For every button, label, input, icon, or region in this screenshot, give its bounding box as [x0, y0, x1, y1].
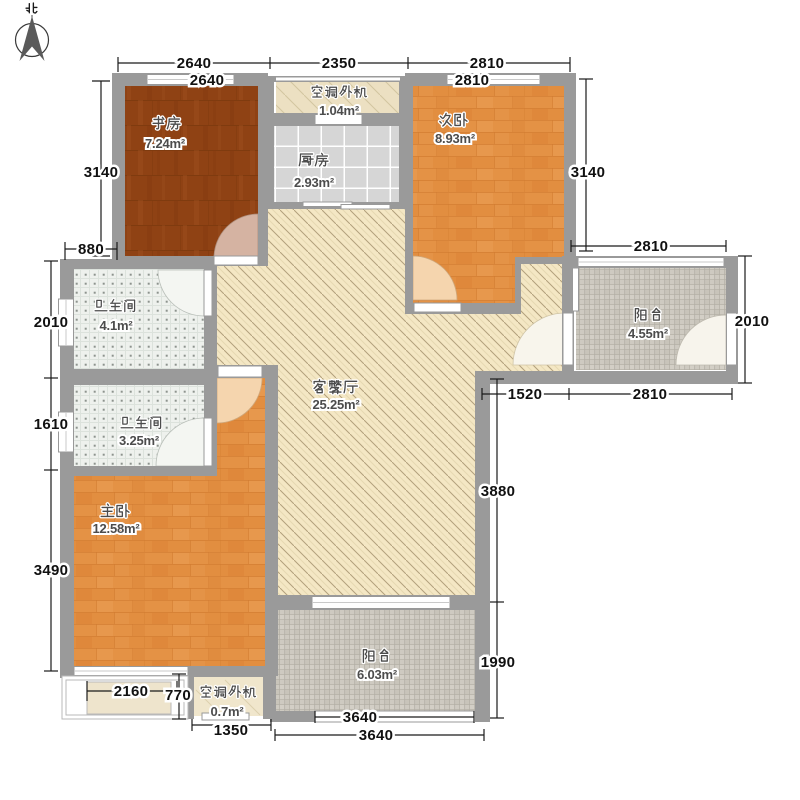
svg-text:2810: 2810 [470, 55, 505, 72]
svg-text:1990: 1990 [481, 654, 516, 671]
svg-text:1.04m²: 1.04m² [319, 103, 360, 118]
svg-text:2010: 2010 [34, 314, 69, 331]
svg-text:2810: 2810 [455, 72, 490, 89]
svg-text:3.25m²: 3.25m² [119, 433, 160, 448]
svg-text:770: 770 [165, 687, 191, 704]
svg-text:3140: 3140 [84, 164, 119, 181]
svg-text:880: 880 [78, 241, 104, 258]
svg-text:0.7m²: 0.7m² [211, 704, 245, 719]
svg-text:8.93m²: 8.93m² [435, 131, 476, 146]
svg-text:3640: 3640 [343, 709, 378, 726]
svg-text:4.55m²: 4.55m² [628, 326, 669, 341]
svg-text:2.93m²: 2.93m² [294, 175, 335, 190]
svg-text:1350: 1350 [214, 722, 249, 739]
svg-text:2640: 2640 [177, 55, 212, 72]
svg-text:2810: 2810 [634, 238, 669, 255]
svg-text:2160: 2160 [114, 683, 149, 700]
svg-text:3490: 3490 [34, 562, 69, 579]
svg-text:6.03m²: 6.03m² [357, 667, 398, 682]
svg-text:2010: 2010 [735, 313, 770, 330]
svg-text:4.1m²: 4.1m² [100, 318, 134, 333]
svg-text:3880: 3880 [481, 483, 516, 500]
svg-text:1610: 1610 [34, 416, 69, 433]
svg-text:1520: 1520 [508, 386, 543, 403]
svg-text:3640: 3640 [359, 727, 394, 744]
svg-text:2810: 2810 [633, 386, 668, 403]
svg-text:2640: 2640 [190, 72, 225, 89]
svg-text:12.58m²: 12.58m² [92, 521, 140, 536]
svg-text:2350: 2350 [322, 55, 357, 72]
svg-text:7.24m²: 7.24m² [145, 136, 186, 151]
svg-text:3140: 3140 [571, 164, 606, 181]
svg-text:25.25m²: 25.25m² [312, 397, 360, 412]
